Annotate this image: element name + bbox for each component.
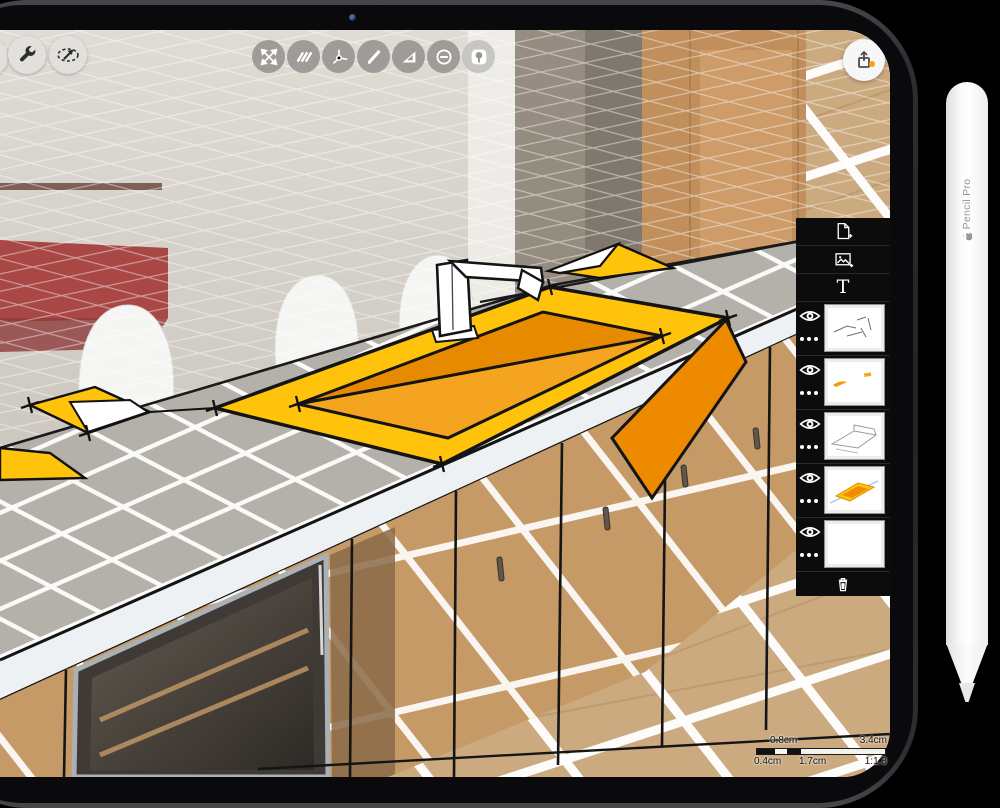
layer-visibility-toggle[interactable]: [799, 416, 821, 432]
apple-logo-icon: [962, 232, 973, 241]
set-square-triangle-icon: [398, 46, 420, 68]
delete-layer-button[interactable]: [796, 572, 890, 596]
scale-bar-segments: [756, 748, 886, 755]
layer-options-button[interactable]: [800, 497, 822, 505]
object-tool-button[interactable]: [462, 40, 495, 73]
scale-label-bottom-left: 0.4cm: [754, 756, 781, 767]
share-icon: [852, 48, 876, 72]
eye-icon: [799, 362, 821, 378]
wrench-icon: [16, 44, 38, 66]
add-text-button[interactable]: T: [796, 274, 890, 302]
layer-visibility-toggle[interactable]: [799, 362, 821, 378]
object-tree-icon: [468, 46, 490, 68]
layer-thumbnail-orange-marks[interactable]: [825, 359, 884, 405]
pencil-brand-label: Pencil Pro: [961, 179, 973, 242]
front-camera-icon: [349, 14, 356, 21]
lasso-select-button[interactable]: [49, 36, 87, 74]
counter-outline-thumbnail: [828, 416, 880, 455]
layer-options-button[interactable]: [800, 335, 822, 343]
layer-row-5[interactable]: [796, 518, 890, 572]
eye-icon: [799, 308, 821, 324]
shape-tool-button[interactable]: [392, 40, 425, 73]
trash-icon: [833, 574, 853, 594]
scale-label-top-left: 0.8cm: [770, 735, 797, 746]
pen-tool-button[interactable]: [357, 40, 390, 73]
layers-panel: T: [796, 218, 890, 596]
ar-scene-canvas[interactable]: [0, 30, 890, 777]
eye-icon: [799, 524, 821, 540]
pencil-tip: [959, 683, 975, 702]
pen-line-icon: [363, 46, 385, 68]
wrench-settings-button[interactable]: [8, 36, 46, 74]
add-page-icon: [833, 221, 854, 242]
apple-pencil-pro: Pencil Pro: [946, 82, 988, 702]
layer-row-3[interactable]: [796, 410, 890, 464]
layer-thumbnail-counter-outline[interactable]: [825, 413, 884, 459]
pencil-cone: [946, 643, 988, 685]
text-tool-label: T: [837, 278, 850, 297]
eye-icon: [799, 416, 821, 432]
move-arrows-icon: [258, 46, 280, 68]
scale-label-top-right: 3.4cm: [860, 735, 887, 746]
add-image-button[interactable]: [796, 246, 890, 274]
pencil-sketch-thumbnail: [828, 308, 880, 347]
layer-options-button[interactable]: [800, 389, 822, 397]
layer-row-4[interactable]: [796, 464, 890, 518]
angle-lines-icon: [328, 46, 350, 68]
fill-hatch-tool-button[interactable]: [287, 40, 320, 73]
ipad-screen: [0, 30, 890, 777]
layer-visibility-toggle[interactable]: [799, 470, 821, 486]
layer-thumbnail-sketch[interactable]: [825, 305, 884, 351]
layer-visibility-toggle[interactable]: [799, 524, 821, 540]
layer-visibility-toggle[interactable]: [799, 308, 821, 324]
layer-thumbnail-orange-sink[interactable]: [825, 467, 884, 513]
marketing-composite: T: [0, 0, 1000, 808]
camera-active-indicator-icon: [869, 61, 875, 67]
layer-row-1[interactable]: [796, 302, 890, 356]
measurement-scale-bar: 0.8cm 3.4cm 0.4cm 1.7cm 1:1.3: [752, 735, 889, 768]
orange-sink-thumbnail: [828, 470, 880, 509]
add-page-button[interactable]: [796, 218, 890, 246]
scale-ratio-label: 1:1.3: [865, 756, 887, 767]
erase-tool-button[interactable]: [427, 40, 460, 73]
layer-options-button[interactable]: [800, 443, 822, 451]
scale-label-bottom-mid: 1.7cm: [799, 756, 826, 767]
lasso-select-arrow-icon: [55, 42, 81, 68]
layer-thumbnail-blank[interactable]: [825, 521, 884, 567]
add-image-icon: [833, 249, 854, 270]
eye-icon: [799, 470, 821, 486]
angle-measure-tool-button[interactable]: [322, 40, 355, 73]
layer-row-2[interactable]: [796, 356, 890, 410]
circle-slash-icon: [433, 46, 455, 68]
hatch-stripes-icon: [293, 46, 315, 68]
move-tool-button[interactable]: [252, 40, 285, 73]
pencil-body: [946, 82, 988, 645]
orange-marks-thumbnail: [828, 362, 880, 401]
share-button[interactable]: [843, 39, 885, 81]
layer-options-button[interactable]: [800, 551, 822, 559]
